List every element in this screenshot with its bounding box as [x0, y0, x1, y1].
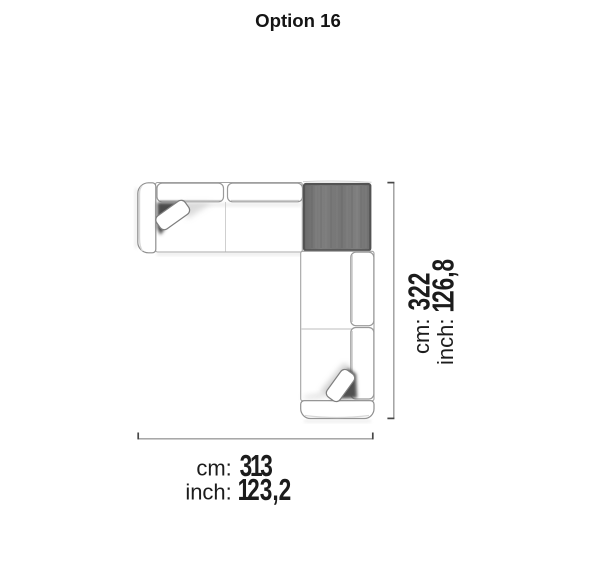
svg-text:126,8: 126,8 [426, 259, 460, 313]
svg-text:123,2: 123,2 [238, 473, 292, 507]
svg-text:inch:: inch: [185, 480, 231, 505]
svg-text:inch:: inch: [433, 319, 458, 365]
svg-text:cm:: cm: [409, 319, 434, 354]
svg-text:cm:: cm: [196, 456, 231, 481]
svg-text:Option 16: Option 16 [255, 10, 341, 31]
